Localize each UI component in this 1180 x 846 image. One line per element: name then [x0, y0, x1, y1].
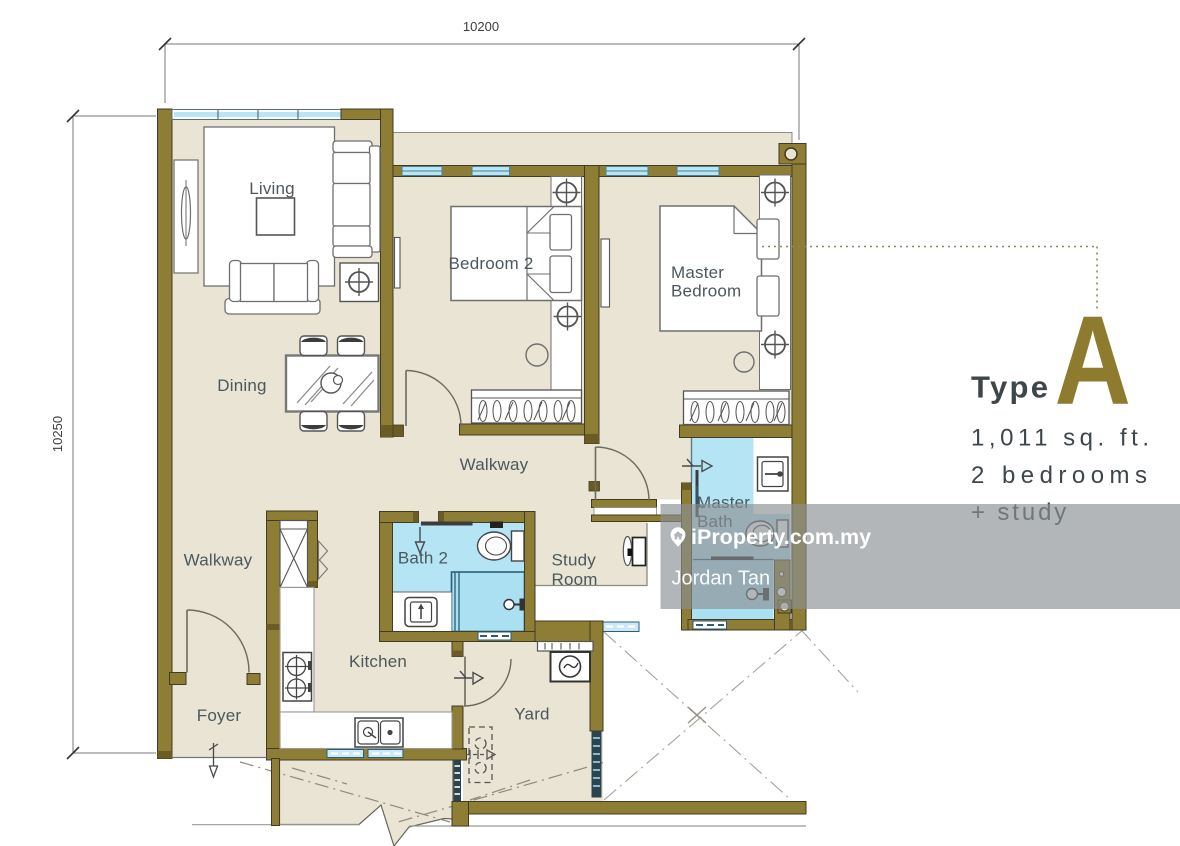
svg-text:Walkway: Walkway	[184, 551, 253, 570]
svg-text:Study: Study	[552, 551, 597, 570]
svg-text:iProperty.com.my: iProperty.com.my	[691, 525, 871, 549]
svg-text:Walkway: Walkway	[460, 455, 529, 474]
svg-text:Jordan Tan: Jordan Tan	[672, 568, 771, 590]
svg-text:Bath 2: Bath 2	[398, 549, 448, 568]
svg-text:Living: Living	[249, 179, 295, 198]
svg-text:Bedroom: Bedroom	[671, 282, 741, 301]
svg-text:10250: 10250	[50, 416, 65, 452]
svg-text:Bedroom 2: Bedroom 2	[449, 254, 534, 273]
svg-text:Room: Room	[552, 570, 598, 589]
svg-text:Dining: Dining	[217, 376, 266, 395]
svg-text:Kitchen: Kitchen	[349, 652, 407, 671]
svg-text:Master: Master	[671, 263, 724, 282]
svg-text:A: A	[1055, 290, 1131, 431]
svg-text:10200: 10200	[463, 19, 499, 34]
svg-text:Yard: Yard	[514, 705, 549, 724]
svg-text:Type: Type	[971, 370, 1048, 405]
svg-text:Foyer: Foyer	[197, 706, 242, 725]
